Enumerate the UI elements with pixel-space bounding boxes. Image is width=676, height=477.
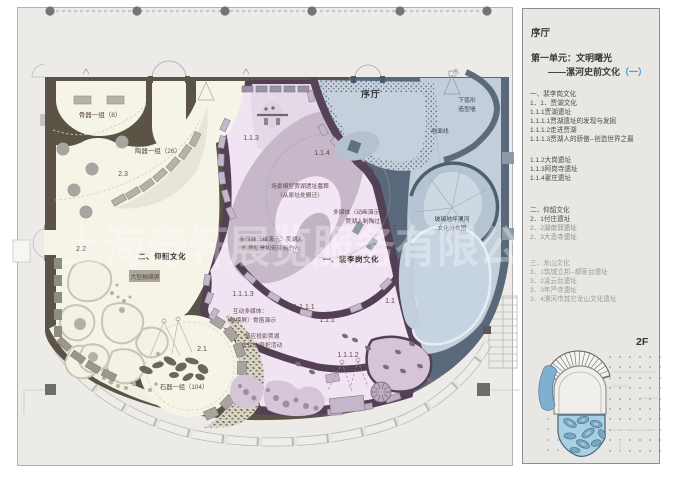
svg-text:1.1.1.2走进贾湖: 1.1.1.2走进贾湖 (530, 125, 577, 134)
svg-text:1.1.1贾湖遗址: 1.1.1贾湖遗址 (530, 107, 571, 116)
svg-text:石器一组（104）: 石器一组（104） (160, 382, 208, 391)
svg-text:上海奇轩展览服务有限公司: 上海奇轩展览服务有限公司 (62, 223, 562, 272)
svg-text:2F: 2F (636, 336, 649, 348)
svg-text:2.1: 2.1 (197, 346, 207, 353)
svg-text:1.1.4: 1.1.4 (314, 150, 330, 157)
svg-text:大型触摸屏: 大型触摸屏 (131, 273, 160, 281)
svg-text:1.1.1.3: 1.1.1.3 (232, 291, 254, 298)
svg-text:1.1.1.1贾湖遗址的发现与发掘: 1.1.1.1贾湖遗址的发现与发掘 (530, 116, 617, 125)
svg-text:1.1.1.1: 1.1.1.1 (293, 304, 315, 311)
svg-text:序厅: 序厅 (531, 27, 551, 39)
svg-text:地面线: 地面线 (431, 127, 449, 135)
svg-text:感应投影贾湖: 感应投影贾湖 (245, 332, 280, 340)
svg-text:陶器一组（26）: 陶器一组（26） (135, 146, 181, 155)
svg-text:1．1．贾湖文化: 1．1．贾湖文化 (530, 98, 577, 107)
svg-text:下弧形: 下弧形 (458, 96, 476, 104)
svg-text:2．2湖南郭遗址: 2．2湖南郭遗址 (530, 223, 577, 232)
svg-text:场景模型贾湖遗址墓葬: 场景模型贾湖遗址墓葬 (271, 182, 329, 190)
svg-text:1.1.1.2: 1.1.1.2 (337, 352, 359, 359)
svg-text:1.1.1.3贾湖人的骄傲--创造世界之最: 1.1.1.3贾湖人的骄傲--创造世界之最 (530, 134, 634, 143)
svg-text:——漯河史前文化（一）: ——漯河史前文化（一） (548, 66, 647, 77)
svg-text:2．1付庄遗址: 2．1付庄遗址 (530, 214, 571, 223)
svg-text:多媒体（动画演示）：: 多媒体（动画演示）： (333, 208, 388, 216)
svg-text:序厅: 序厅 (361, 88, 381, 99)
svg-text:2.3: 2.3 (118, 171, 128, 178)
svg-text:3．3年严寺遗址: 3．3年严寺遗址 (530, 285, 577, 294)
svg-text:1.1.2大岗遗址: 1.1.2大岗遗址 (530, 155, 571, 164)
svg-text:二、仰韶文化: 二、仰韶文化 (530, 205, 570, 214)
svg-text:3．1筑城立邦--郝家台遗址: 3．1筑城立邦--郝家台遗址 (530, 267, 608, 276)
svg-text:（从原址处搬迁）: （从原址处搬迁） (277, 191, 323, 199)
svg-text:一、裴李岗文化: 一、裴李岗文化 (530, 89, 577, 98)
svg-text:2．3大悲寺遗址: 2．3大悲寺遗址 (530, 232, 577, 241)
svg-text:先民的祭祀活动: 先民的祭祀活动 (242, 341, 283, 349)
svg-text:骨器一组（8）: 骨器一组（8） (79, 110, 122, 119)
svg-text:三、龙山文化: 三、龙山文化 (530, 258, 570, 267)
svg-text:3．2凌云台遗址: 3．2凌云台遗址 (530, 276, 577, 285)
svg-text:1.1.3: 1.1.3 (243, 135, 259, 142)
svg-text:1.1: 1.1 (385, 298, 395, 305)
svg-text:造型墙: 造型墙 (458, 105, 476, 113)
svg-text:第一单元：文明曙光: 第一单元：文明曙光 (531, 52, 612, 63)
svg-text:玻璃地坪漯河: 玻璃地坪漯河 (435, 215, 470, 223)
svg-text:3．4漯河市其它龙山文化遗址: 3．4漯河市其它龙山文化遗址 (530, 294, 617, 303)
svg-text:1.1.1: 1.1.1 (319, 317, 335, 324)
svg-text:互动多媒体：: 互动多媒体： (233, 307, 268, 315)
svg-text:（触摸屏）骨笛演示: （触摸屏）骨笛演示 (224, 316, 276, 324)
svg-text:1.1.3阿岗寺遗址: 1.1.3阿岗寺遗址 (530, 164, 578, 173)
svg-text:1.1.4翟庄遗址: 1.1.4翟庄遗址 (530, 173, 571, 182)
